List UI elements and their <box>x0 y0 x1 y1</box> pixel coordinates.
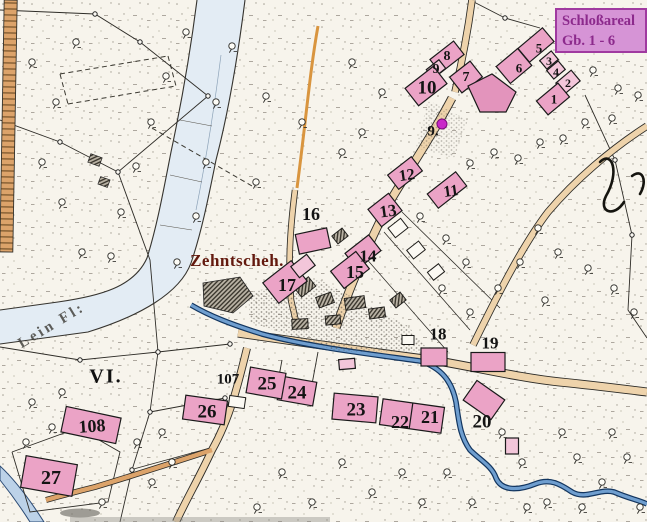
map-canvas <box>0 0 647 522</box>
building-label-6: 6 <box>516 62 523 75</box>
building-label-8: 8 <box>444 50 451 64</box>
building-label-19: 19 <box>482 335 499 352</box>
building-label-9b: 9. <box>427 125 438 140</box>
historical-cadastral-map: 8 9 10 7 5 6 3 4 2 1 9. 12 11 13 14 15 1… <box>0 0 647 522</box>
building-19 <box>471 353 505 372</box>
building-label-22: 22 <box>391 413 409 431</box>
legend-subtitle: Gb. 1 - 6 <box>562 32 645 52</box>
building-label-27: 27 <box>41 468 61 488</box>
building-label-16: 16 <box>302 205 320 223</box>
building-label-13: 13 <box>378 201 397 220</box>
building-label-26: 26 <box>198 403 217 422</box>
building-label-5: 5 <box>536 42 543 55</box>
tithe-barn-label: Zehntscheh. <box>190 251 284 271</box>
scan-artifact <box>60 509 100 518</box>
building-label-25: 25 <box>258 375 277 394</box>
building-label-3: 3 <box>546 55 552 67</box>
building-label-1: 1 <box>551 93 558 106</box>
building-label-11: 11 <box>442 183 459 201</box>
building-label-20: 20 <box>473 413 492 432</box>
building-label-17: 17 <box>278 276 296 294</box>
building-label-2: 2 <box>565 77 571 89</box>
legend-title: Schloßareal <box>562 12 645 32</box>
small-pink-building-2 <box>506 438 519 454</box>
meadow-stipple-texture <box>0 0 647 522</box>
building-label-15: 15 <box>346 263 364 281</box>
parcel-label-107: 107 <box>217 373 240 388</box>
building-label-23: 23 <box>347 401 366 420</box>
district-numeral: VI. <box>89 366 122 389</box>
building-label-10: 10 <box>418 79 437 98</box>
building-label-108: 108 <box>78 416 106 436</box>
building-label-12: 12 <box>398 167 416 185</box>
building-label-4: 4 <box>553 66 559 78</box>
small-pink-building-1 <box>339 358 356 369</box>
building-label-7: 7 <box>463 71 470 85</box>
building-label-24: 24 <box>288 384 307 403</box>
building-label-21: 21 <box>421 408 439 426</box>
building-18 <box>421 348 447 366</box>
legend-box: Schloßareal Gb. 1 - 6 <box>555 8 647 53</box>
building-label-9: 9 <box>433 63 440 77</box>
building-label-18: 18 <box>430 326 447 343</box>
scan-artifact-edge <box>70 517 330 522</box>
